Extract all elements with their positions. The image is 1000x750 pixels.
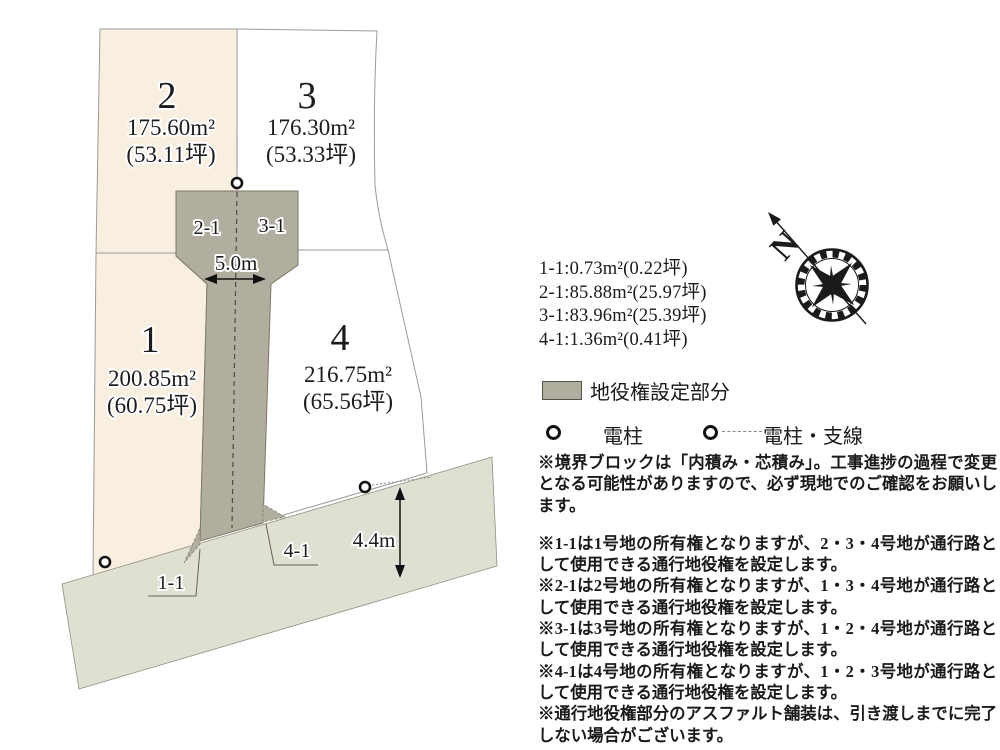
parcel-4-area: 216.75m²	[304, 362, 392, 387]
easement-area-item: 2-1:85.88m²(25.97坪)	[539, 282, 707, 306]
parcel-3-tsubo: (53.33坪)	[266, 142, 356, 167]
easement-label-3-1: 3-1	[259, 215, 286, 237]
easement-area-item: 1-1:0.73m²(0.22坪)	[539, 258, 707, 282]
utility-pole-guy-icon	[703, 425, 718, 440]
utility-pole-icon	[232, 178, 242, 188]
parcel-4-tsubo: (65.56坪)	[303, 389, 393, 414]
easement-swatch-icon	[542, 381, 582, 400]
note-easement-3-1: ※3-1は3号地の所有権となりますが、1・2・4号地が通行路として使用できる通行…	[538, 618, 997, 661]
easement-label-4-1: 4-1	[284, 540, 311, 562]
easement-area-item: 4-1:1.36m²(0.41坪)	[539, 329, 707, 353]
dim-5m-label: 5.0m	[215, 251, 258, 275]
easement-label-1-1: 1-1	[158, 572, 185, 594]
pole-legend-label: 電柱	[603, 420, 643, 449]
compass-north-label: N	[763, 224, 807, 267]
parcel-1-tsubo: (60.75坪)	[107, 393, 197, 418]
note-easement-1-1: ※1-1は1号地の所有権となりますが、2・3・4号地が通行路として使用できる通行…	[538, 533, 997, 576]
easement-area-item: 3-1:83.96m²(25.39坪)	[539, 305, 707, 329]
compass-rose-icon: N	[763, 212, 874, 327]
guy-wire-dash-icon	[722, 431, 762, 432]
parcel-1-area: 200.85m²	[108, 366, 196, 391]
parcel-2-tsubo: (53.11坪)	[126, 142, 215, 167]
utility-pole-icon	[360, 482, 370, 492]
pole-guy-legend-label: 電柱・支線	[763, 420, 863, 449]
note-easement-2-1: ※2-1は2号地の所有権となりますが、1・3・4号地が通行路として使用できる通行…	[538, 575, 997, 618]
dim-4-4m-label: 4.4m	[353, 528, 396, 552]
parcel-3-number: 3	[298, 75, 317, 117]
easement-area-list: 1-1:0.73m²(0.22坪) 2-1:85.88m²(25.97坪) 3-…	[539, 258, 707, 352]
land-plot-diagram: 2 175.60m² (53.11坪) 3 176.30m² (53.33坪) …	[0, 0, 1000, 750]
easement-legend-label: 地役権設定部分	[590, 376, 730, 405]
parcel-4-number: 4	[331, 317, 350, 359]
parcel-3-area: 176.30m²	[267, 115, 355, 140]
parcel-2-area: 175.60m²	[127, 115, 215, 140]
note-asphalt: ※通行地役権部分のアスファルト舗装は、引き渡しまでに完了しない場合がございます。	[538, 703, 997, 746]
parcel-1-number: 1	[141, 319, 160, 361]
easement-label-2-1: 2-1	[194, 217, 221, 239]
utility-pole-icon	[546, 425, 561, 440]
notes-block: ※境界ブロックは「内積み・芯積み」。工事進捗の過程で変更となる可能性がありますの…	[538, 452, 997, 746]
note-boundary-block: ※境界ブロックは「内積み・芯積み」。工事進捗の過程で変更となる可能性がありますの…	[538, 452, 997, 516]
note-easement-4-1: ※4-1は4号地の所有権となりますが、1・2・3号地が通行路として使用できる通行…	[538, 661, 997, 704]
parcel-2-number: 2	[158, 75, 177, 117]
utility-pole-icon	[100, 557, 110, 567]
